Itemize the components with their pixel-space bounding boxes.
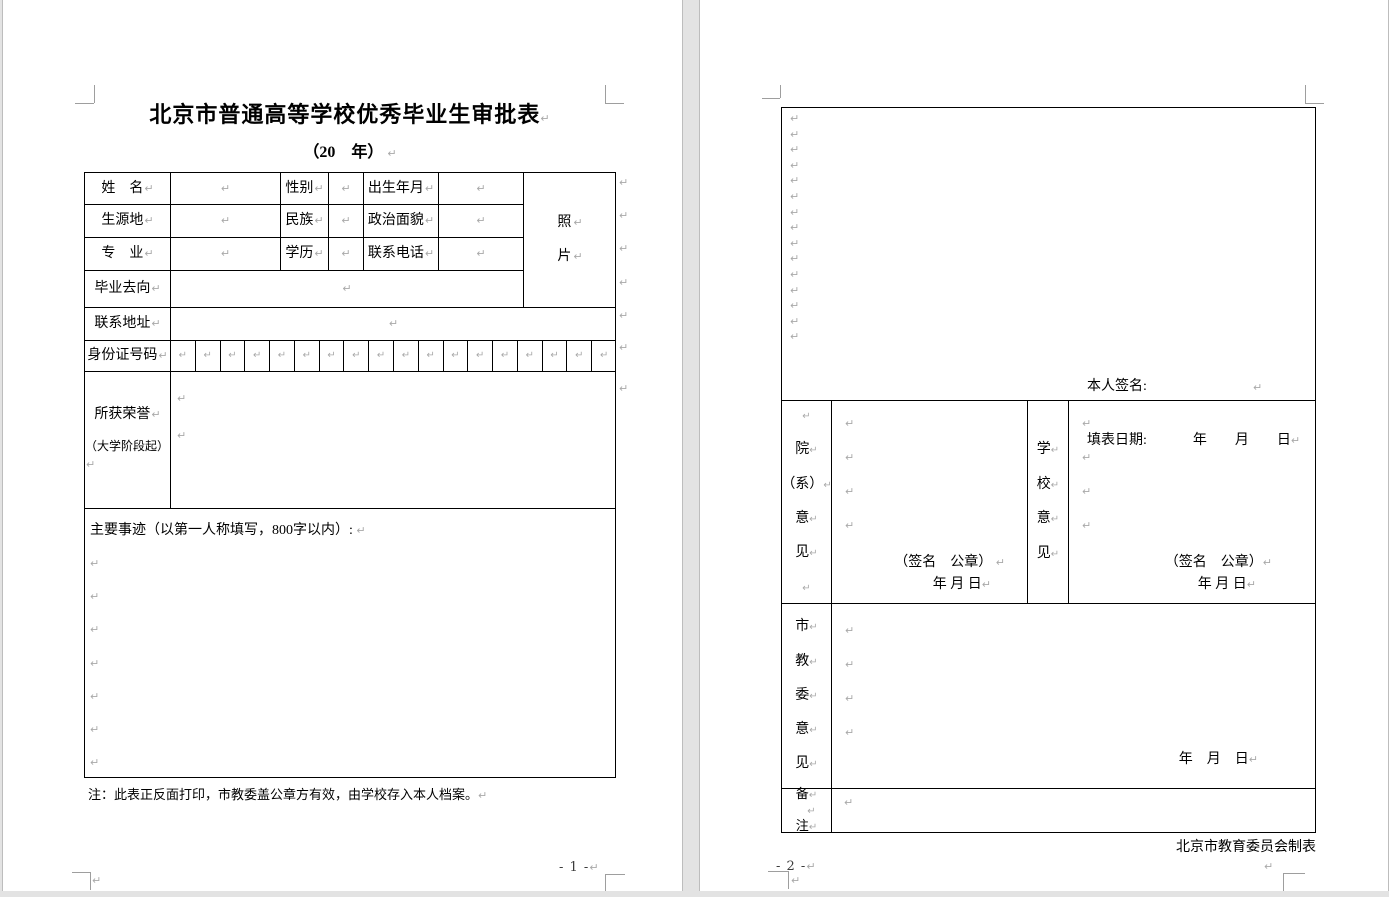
- paragraph-mark: ↵: [809, 622, 817, 633]
- paragraph-mark: ↵: [1051, 445, 1059, 456]
- paragraph-mark: ↵: [144, 245, 153, 263]
- page-title: 北京市普通高等学校优秀毕业生审批表↵: [84, 100, 616, 134]
- footer-end-mark: ↵: [92, 874, 101, 887]
- applicant-info-table: 姓 名↵ ↵ 性别↵ ↵ 出生年月↵ ↵ 照↵ 片↵ 生源地↵ ↵ 民族↵ ↵ …: [84, 172, 616, 778]
- field-value-phone[interactable]: ↵: [438, 237, 523, 270]
- dept-opinion-area[interactable]: ↵ ↵ ↵ ↵ （签名 公章） ↵ 年 月 日↵: [831, 400, 1027, 603]
- field-label-gender: 性别↵: [280, 172, 328, 204]
- paragraph-mark: ↵: [845, 716, 1316, 750]
- approval-table: ↵ ↵ ↵ ↵ ↵ ↵ ↵ ↵ ↵ ↵ ↵ ↵ ↵ ↵ ↵ 本人签名:↵ 填表日…: [781, 107, 1316, 833]
- paragraph-mark: ↵: [600, 347, 608, 365]
- paragraph-mark: ↵: [1247, 578, 1256, 591]
- crop-mark: [72, 872, 90, 873]
- paragraph-mark: ↵: [550, 347, 558, 365]
- paragraph-mark: ↵: [90, 613, 99, 646]
- paragraph-mark: ↵: [809, 657, 817, 668]
- paragraph-mark: ↵: [389, 315, 398, 333]
- paragraph-mark: ↵: [526, 347, 534, 365]
- paragraph-mark: ↵: [845, 441, 1027, 475]
- paragraph-mark: ↵: [90, 547, 99, 580]
- field-value-degree[interactable]: ↵: [328, 237, 363, 270]
- paragraph-mark: ↵: [476, 212, 485, 230]
- field-value-graduation-destination[interactable]: ↵: [170, 270, 523, 307]
- paragraph-mark: ↵: [342, 280, 351, 298]
- paragraph-mark: ↵: [476, 180, 485, 198]
- paragraph-mark: ↵: [402, 347, 410, 365]
- paragraph-mark: ↵: [845, 648, 1316, 682]
- empty-paragraphs: ↵ ↵ ↵ ↵ ↵ ↵ ↵ ↵ ↵ ↵ ↵ ↵ ↵ ↵ ↵: [790, 111, 799, 345]
- field-value-major[interactable]: ↵: [170, 237, 280, 270]
- field-value-address[interactable]: ↵: [170, 307, 616, 340]
- field-label-political-status: 政治面貌↵: [363, 204, 438, 237]
- field-label-address: 联系地址↵: [84, 307, 170, 340]
- paragraph-mark: ↵: [1082, 441, 1316, 475]
- paragraph-mark: ↵: [1082, 475, 1316, 509]
- paragraph-mark: ↵: [982, 578, 991, 591]
- crop-mark: [605, 874, 606, 891]
- paragraph-mark: ↵: [151, 315, 160, 333]
- paragraph-mark: ↵: [90, 580, 99, 613]
- paragraph-mark: ↵: [151, 280, 160, 298]
- paragraph-mark: ↵: [809, 445, 817, 456]
- paragraph-mark: ↵: [1051, 514, 1059, 525]
- paragraph-mark: ↵: [790, 329, 799, 345]
- paragraph-mark: ↵: [327, 347, 335, 365]
- form-maker: 北京市教育委员会制表: [1060, 836, 1316, 856]
- paragraph-mark: ↵: [1051, 480, 1059, 491]
- page-subtitle-year: （20 年） ↵: [84, 142, 616, 165]
- paragraph-mark: ↵: [540, 112, 550, 125]
- id-digit-cell[interactable]: ↵: [591, 341, 616, 371]
- id-digit-cell[interactable]: ↵: [566, 341, 591, 371]
- school-opinion-area[interactable]: ↵ ↵ ↵ ↵ （签名 公章）↵ 年 月 日↵: [1068, 400, 1316, 603]
- deeds-continued-area[interactable]: ↵ ↵ ↵ ↵ ↵ ↵ ↵ ↵ ↵ ↵ ↵ ↵ ↵ ↵ ↵ 本人签名:↵ 填表日…: [781, 107, 1316, 400]
- paragraph-mark: ↵: [790, 298, 799, 314]
- paragraph-mark: ↵: [790, 142, 799, 158]
- paragraph-mark: ↵: [806, 860, 816, 873]
- id-digit-cell[interactable]: ↵: [244, 341, 269, 371]
- paragraph-mark: ↵: [90, 680, 99, 713]
- paragraph-mark: ↵: [809, 548, 817, 559]
- paragraph-mark: ↵: [426, 347, 434, 365]
- paragraph-mark: ↵: [996, 556, 1005, 569]
- id-digit-cell[interactable]: ↵: [368, 341, 393, 371]
- crop-mark: [1283, 873, 1284, 891]
- paragraph-mark: ↵: [790, 251, 799, 267]
- crop-mark: [605, 874, 625, 875]
- id-digit-cell[interactable]: ↵: [418, 341, 443, 371]
- paragraph-mark: ↵: [809, 759, 817, 770]
- paragraph-mark: ↵: [845, 614, 1316, 648]
- paragraph-mark: ↵: [809, 691, 817, 702]
- crop-mark: [762, 98, 780, 99]
- print-note: 注：此表正反面打印，市教委盖公章方有效，由学校存入本人档案。↵: [88, 786, 487, 804]
- field-label-honors: 所获荣誉↵ （大学阶段起）↵: [84, 371, 170, 508]
- field-label-id-number: 身份证号码↵: [84, 340, 170, 371]
- dept-opinion-label: ↵ 院↵ （系）↵ 意↵ 见↵ ↵: [781, 400, 831, 603]
- paragraph-mark: ↵: [425, 212, 434, 230]
- paragraph-mark: ↵: [478, 789, 487, 802]
- field-label-origin: 生源地↵: [84, 204, 170, 237]
- id-digit-cell[interactable]: ↵: [220, 341, 245, 371]
- paragraph-mark: ↵: [790, 283, 799, 299]
- paragraph-mark: ↵: [790, 127, 799, 143]
- date-ymd: 年 月 日↵: [1082, 575, 1316, 594]
- paragraph-mark: ↵: [573, 216, 582, 229]
- id-digit-cell[interactable]: ↵: [393, 341, 418, 371]
- id-digit-cell[interactable]: ↵: [294, 341, 319, 371]
- paragraph-mark: ↵: [802, 411, 810, 422]
- paragraph-mark: ↵: [86, 458, 95, 471]
- paragraph-mark: ↵: [425, 180, 434, 198]
- crop-mark: [1305, 85, 1306, 103]
- date-ymd: 年 月 日↵: [845, 575, 1027, 594]
- paragraph-mark: ↵: [341, 212, 350, 230]
- paragraph-mark: ↵: [377, 347, 385, 365]
- paragraph-mark: ↵: [1082, 407, 1316, 441]
- paragraph-mark: ↵: [790, 205, 799, 221]
- paragraph-mark: ↵: [221, 180, 230, 198]
- paragraph-mark: ↵: [790, 158, 799, 174]
- id-digit-cell[interactable]: ↵: [269, 341, 294, 371]
- paragraph-mark: ↵: [790, 173, 799, 189]
- row-end-mark: ↵: [619, 242, 628, 255]
- id-digit-cell[interactable]: ↵: [542, 341, 567, 371]
- honors-content-area[interactable]: ↵ ↵: [170, 371, 616, 508]
- paragraph-mark: ↵: [790, 236, 799, 252]
- crop-mark: [605, 103, 624, 104]
- field-value-political-status[interactable]: ↵: [438, 204, 523, 237]
- paragraph-mark: ↵: [844, 794, 853, 812]
- paragraph-mark: ↵: [589, 861, 599, 874]
- field-label-major: 专 业↵: [84, 237, 170, 270]
- paragraph-mark: ↵: [790, 267, 799, 283]
- paragraph-mark: ↵: [341, 245, 350, 263]
- remark-area[interactable]: ↵: [831, 788, 1316, 833]
- paragraph-mark: ↵: [341, 180, 350, 198]
- paragraph-mark: ↵: [845, 475, 1027, 509]
- paragraph-mark: ↵: [575, 347, 583, 365]
- paragraph-mark: ↵: [573, 250, 582, 263]
- paragraph-mark: ↵: [476, 245, 485, 263]
- word-document-view: { "chars": { "pilcrow": "↵" }, "page1": …: [0, 0, 1389, 897]
- committee-opinion-label: 市↵ 教↵ 委↵ 意↵ 见↵: [781, 603, 831, 788]
- paragraph-mark: ↵: [228, 347, 236, 365]
- paragraph-mark: ↵: [177, 417, 186, 454]
- paragraph-mark: ↵: [790, 111, 799, 127]
- photo-area[interactable]: 照↵ 片↵: [523, 172, 616, 307]
- committee-opinion-area[interactable]: ↵ ↵ ↵ ↵ 年 月 日↵: [831, 603, 1316, 788]
- row-end-mark: ↵: [619, 341, 628, 354]
- sign-seal-hint: （签名 公章）↵: [1082, 553, 1316, 572]
- crop-mark: [768, 871, 788, 872]
- field-label-name: 姓 名↵: [84, 172, 170, 204]
- paragraph-mark: ↵: [425, 245, 434, 263]
- row-end-mark: ↵: [619, 276, 628, 289]
- paragraph-mark: ↵: [451, 347, 459, 365]
- field-label-graduation-destination: 毕业去向↵: [84, 270, 170, 307]
- paragraph-mark: ↵: [790, 189, 799, 205]
- paragraph-mark: ↵: [221, 212, 230, 230]
- crop-mark: [1283, 873, 1305, 874]
- paragraph-mark: ↵: [253, 347, 261, 365]
- field-label-degree: 学历↵: [280, 237, 328, 270]
- id-digit-cell[interactable]: ↵: [492, 341, 517, 371]
- paragraph-mark: ↵: [221, 245, 230, 263]
- paragraph-mark: ↵: [501, 347, 509, 365]
- paragraph-mark: ↵: [802, 583, 810, 594]
- footer-end-mark: ↵: [791, 874, 800, 887]
- row-end-mark: ↵: [619, 309, 628, 322]
- paragraph-mark: ↵: [845, 407, 1027, 441]
- id-digit-cell[interactable]: ↵: [319, 341, 344, 371]
- crop-mark: [605, 85, 606, 103]
- field-value-origin[interactable]: ↵: [170, 204, 280, 237]
- id-number-digit-row: ↵ ↵ ↵ ↵ ↵ ↵ ↵ ↵ ↵ ↵ ↵ ↵ ↵ ↵ ↵ ↵ ↵ ↵: [170, 340, 616, 371]
- paragraph-mark: ↵: [807, 806, 815, 817]
- paragraph-mark: ↵: [845, 509, 1027, 543]
- paragraph-mark: ↵: [809, 822, 817, 833]
- paragraph-mark: ↵: [90, 647, 99, 680]
- paragraph-mark: ↵: [314, 180, 323, 198]
- paragraph-mark: ↵: [278, 347, 286, 365]
- sign-seal-hint: （签名 公章） ↵: [845, 553, 1027, 572]
- paragraph-mark: ↵: [144, 212, 153, 230]
- paragraph-mark: ↵: [387, 147, 396, 160]
- crop-mark: [780, 85, 781, 98]
- paragraph-mark: ↵: [809, 790, 817, 801]
- paragraph-mark: ↵: [314, 212, 323, 230]
- paragraph-mark: ↵: [90, 713, 99, 746]
- field-value-name[interactable]: ↵: [170, 172, 280, 204]
- id-digit-cell[interactable]: ↵: [443, 341, 468, 371]
- id-digit-cell[interactable]: ↵: [195, 341, 220, 371]
- field-label-birth-date: 出生年月↵: [363, 172, 438, 204]
- crop-mark: [94, 85, 95, 103]
- paragraph-mark: ↵: [1051, 549, 1059, 560]
- crop-mark: [1305, 103, 1324, 104]
- date-ymd: 年 月 日↵: [845, 750, 1316, 769]
- paragraph-mark: ↵: [314, 245, 323, 263]
- row-end-mark: ↵: [619, 209, 628, 222]
- remark-label: 备↵ ↵ 注↵: [781, 788, 831, 833]
- paragraph-mark: ↵: [809, 514, 817, 525]
- self-signature-label: 本人签名:↵: [1087, 378, 1300, 396]
- footer-end-mark: ↵: [1264, 860, 1273, 873]
- field-value-birth-date[interactable]: ↵: [438, 172, 523, 204]
- page-number-1: - 1 -↵: [559, 860, 600, 875]
- field-label-ethnicity: 民族↵: [280, 204, 328, 237]
- paragraph-mark: ↵: [158, 347, 167, 365]
- paragraph-mark: ↵: [90, 746, 99, 779]
- field-label-phone: 联系电话↵: [363, 237, 438, 270]
- paragraph-mark: ↵: [144, 180, 153, 198]
- crop-mark: [788, 871, 789, 889]
- crop-mark: [75, 103, 94, 104]
- paragraph-mark: ↵: [845, 682, 1316, 716]
- row-end-mark: ↵: [619, 176, 628, 189]
- paragraph-mark: ↵: [809, 725, 817, 736]
- main-deeds-area[interactable]: 主要事迹（以第一人称填写，800字以内）: ↵ ↵ ↵ ↵ ↵ ↵ ↵ ↵: [84, 508, 616, 778]
- row-end-mark: ↵: [619, 382, 628, 395]
- paragraph-mark: ↵: [179, 347, 187, 365]
- school-opinion-label: 学↵ 校↵ 意↵ 见↵: [1027, 400, 1068, 603]
- id-digit-cell[interactable]: ↵: [343, 341, 368, 371]
- paragraph-mark: ↵: [177, 380, 186, 417]
- paragraph-mark: ↵: [352, 347, 360, 365]
- paragraph-mark: ↵: [790, 314, 799, 330]
- paragraph-mark: ↵: [1082, 509, 1316, 543]
- paragraph-mark: ↵: [1253, 379, 1262, 397]
- id-digit-cell[interactable]: ↵: [517, 341, 542, 371]
- paragraph-mark: ↵: [303, 347, 311, 365]
- paragraph-mark: ↵: [476, 347, 484, 365]
- crop-mark: [90, 872, 91, 890]
- paragraph-mark: ↵: [1249, 753, 1258, 766]
- field-value-ethnicity[interactable]: ↵: [328, 204, 363, 237]
- paragraph-mark: ↵: [1263, 556, 1272, 569]
- id-digit-cell[interactable]: ↵: [467, 341, 492, 371]
- paragraph-mark: ↵: [203, 347, 211, 365]
- id-digit-cell[interactable]: ↵: [171, 341, 195, 371]
- field-value-gender[interactable]: ↵: [328, 172, 363, 204]
- paragraph-mark: ↵: [356, 524, 365, 537]
- paragraph-mark: ↵: [151, 408, 160, 421]
- paragraph-mark: ↵: [790, 220, 799, 236]
